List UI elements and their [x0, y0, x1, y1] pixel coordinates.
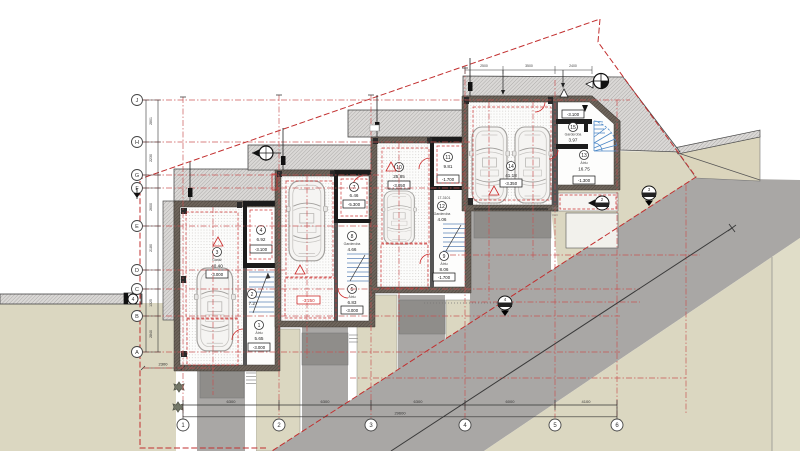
svg-text:6.46: 6.46	[350, 193, 359, 198]
svg-text:Garderoba: Garderoba	[434, 212, 451, 216]
svg-text:2840: 2840	[149, 330, 153, 338]
svg-text:-1.700: -1.700	[442, 177, 455, 182]
svg-text:D: D	[135, 268, 139, 274]
svg-text:3500: 3500	[525, 64, 533, 68]
svg-text:-3.250: -3.250	[302, 298, 315, 303]
svg-text:2230: 2230	[149, 154, 153, 162]
svg-text:Garáž: Garáž	[212, 258, 222, 262]
svg-text:2300: 2300	[159, 362, 169, 367]
svg-text:-3.100: -3.100	[567, 112, 580, 117]
svg-text:13: 13	[581, 153, 587, 159]
svg-text:4: 4	[132, 297, 135, 303]
svg-text:6000: 6000	[506, 399, 516, 404]
svg-text:2180: 2180	[149, 244, 153, 252]
svg-text:2400: 2400	[569, 64, 577, 68]
svg-text:H: H	[135, 140, 139, 146]
svg-text:B: B	[135, 314, 139, 320]
svg-text:9: 9	[443, 254, 446, 260]
svg-text:Garderoba: Garderoba	[565, 133, 582, 137]
svg-text:41.18: 41.18	[505, 173, 517, 178]
svg-text:-5.300: -5.300	[348, 202, 361, 207]
svg-text:12: 12	[439, 204, 445, 210]
svg-text:8: 8	[351, 234, 354, 240]
svg-text:G: G	[135, 173, 139, 179]
svg-text:15: 15	[570, 125, 576, 131]
svg-text:6300: 6300	[227, 399, 237, 404]
svg-text:3.97: 3.97	[569, 138, 578, 143]
svg-text:8.06: 8.06	[440, 267, 449, 272]
svg-text:Átriu: Átriu	[440, 262, 447, 266]
svg-text:2801: 2801	[149, 117, 153, 125]
svg-text:2500: 2500	[480, 64, 488, 68]
svg-text:-3.000: -3.000	[253, 345, 266, 350]
svg-text:3: 3	[216, 250, 219, 256]
svg-text:2600: 2600	[149, 203, 153, 211]
svg-text:J: J	[136, 98, 139, 104]
svg-text:6.83: 6.83	[348, 300, 357, 305]
svg-text:4100: 4100	[582, 399, 592, 404]
svg-text:-1.700: -1.700	[438, 275, 451, 280]
svg-text:6.92: 6.92	[257, 237, 266, 242]
svg-text:-3.100: -3.100	[255, 247, 268, 252]
svg-text:1: 1	[258, 323, 261, 329]
svg-text:14: 14	[508, 164, 514, 170]
svg-text:16.75: 16.75	[578, 167, 590, 172]
svg-text:1T-3101: 1T-3101	[438, 196, 451, 200]
svg-text:Garderoba: Garderoba	[344, 242, 361, 246]
svg-text:C: C	[135, 287, 139, 293]
svg-text:E: E	[135, 224, 139, 230]
svg-text:5.65: 5.65	[255, 336, 264, 341]
svg-text:4.66: 4.66	[348, 247, 357, 252]
svg-text:A: A	[135, 350, 139, 356]
svg-text:4.06: 4.06	[438, 217, 447, 222]
svg-text:4: 4	[260, 228, 263, 234]
svg-text:Átriu: Átriu	[580, 161, 587, 165]
svg-text:29600: 29600	[394, 411, 406, 416]
svg-text:-1.300: -1.300	[578, 178, 591, 183]
svg-text:6300: 6300	[414, 399, 424, 404]
svg-text:11: 11	[445, 155, 450, 161]
svg-text:Átriu: Átriu	[255, 331, 262, 335]
svg-text:-3.000: -3.000	[346, 308, 359, 313]
svg-text:-3.350: -3.350	[505, 181, 518, 186]
svg-text:9.81: 9.81	[444, 164, 453, 169]
svg-text:Átriu: Átriu	[348, 295, 355, 299]
svg-text:6300: 6300	[321, 399, 331, 404]
svg-text:2: 2	[251, 292, 254, 298]
svg-text:5: 5	[351, 287, 354, 293]
svg-text:7.27: 7.27	[249, 301, 258, 306]
svg-text:1325: 1325	[149, 299, 153, 307]
